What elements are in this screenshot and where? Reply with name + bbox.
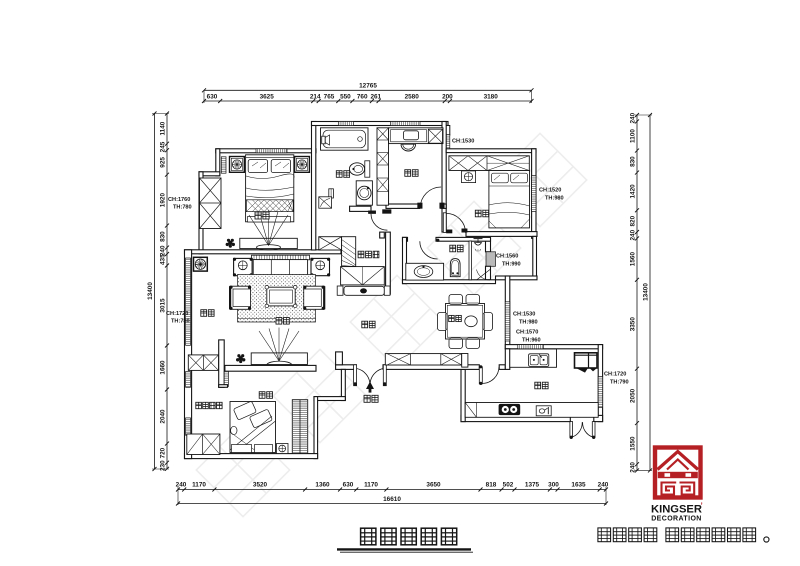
svg-text:300: 300 (548, 482, 559, 489)
svg-text:240: 240 (630, 462, 637, 473)
svg-text:CH:1530: CH:1530 (513, 312, 535, 318)
svg-text:630: 630 (343, 482, 354, 489)
svg-text:1550: 1550 (630, 436, 637, 451)
svg-text:3625: 3625 (260, 93, 275, 100)
svg-text:1660: 1660 (160, 360, 167, 375)
svg-text:TH:990: TH:990 (502, 262, 521, 268)
svg-text:TH:780: TH:780 (171, 319, 190, 325)
svg-text:3180: 3180 (484, 93, 499, 100)
svg-text:3350: 3350 (630, 317, 637, 332)
svg-text:TH:790: TH:790 (610, 380, 629, 386)
svg-text:720: 720 (160, 447, 167, 458)
svg-text:’: ’ (701, 502, 703, 511)
svg-text:1360: 1360 (315, 482, 330, 489)
svg-text:240: 240 (598, 482, 609, 489)
svg-text:TH:780: TH:780 (173, 205, 192, 211)
svg-text:818: 818 (486, 482, 497, 489)
svg-text:CH:1720: CH:1720 (166, 311, 188, 317)
svg-text:760: 760 (357, 93, 368, 100)
svg-text:CH:1530: CH:1530 (452, 139, 474, 145)
svg-text:830: 830 (630, 156, 637, 167)
svg-text:435: 435 (160, 254, 167, 265)
svg-text:CH:1760: CH:1760 (168, 197, 190, 203)
svg-text:DECORATION: DECORATION (651, 516, 702, 523)
svg-text:245: 245 (160, 141, 167, 152)
svg-text:KINGSER: KINGSER (651, 504, 702, 516)
svg-text:240: 240 (176, 482, 187, 489)
svg-text:261: 261 (370, 93, 381, 100)
svg-text:2040: 2040 (160, 409, 167, 424)
svg-text:TH:980: TH:980 (519, 320, 538, 326)
svg-text:3520: 3520 (253, 482, 268, 489)
svg-text:13400: 13400 (147, 282, 154, 300)
svg-text:925: 925 (160, 157, 167, 168)
svg-text:1635: 1635 (571, 482, 586, 489)
svg-text:820: 820 (630, 215, 637, 226)
svg-text:1140: 1140 (160, 121, 167, 135)
svg-text:12765: 12765 (359, 83, 377, 90)
svg-text:2580: 2580 (405, 93, 420, 100)
svg-text:240: 240 (630, 229, 637, 240)
svg-text:230: 230 (160, 460, 167, 471)
svg-text:2050: 2050 (630, 388, 637, 403)
svg-text:CH:1520: CH:1520 (539, 188, 561, 194)
svg-text:765: 765 (324, 93, 335, 100)
svg-text:CH:1720: CH:1720 (604, 372, 626, 378)
svg-text:200: 200 (442, 93, 453, 100)
svg-text:550: 550 (340, 93, 351, 100)
svg-text:1920: 1920 (160, 193, 167, 208)
svg-text:1560: 1560 (630, 252, 637, 267)
svg-text:1170: 1170 (192, 482, 206, 489)
svg-text:630: 630 (207, 93, 218, 100)
svg-text:502: 502 (503, 482, 514, 489)
svg-text:13400: 13400 (643, 283, 650, 301)
svg-text:1375: 1375 (525, 482, 540, 489)
svg-text:1420: 1420 (630, 184, 637, 199)
svg-text:16610: 16610 (383, 496, 401, 503)
svg-text:CH:1560: CH:1560 (496, 254, 518, 260)
svg-text:830: 830 (160, 231, 167, 242)
svg-text:240: 240 (630, 112, 637, 123)
svg-text:1170: 1170 (364, 482, 378, 489)
svg-text:1100: 1100 (630, 129, 637, 143)
svg-text:3650: 3650 (426, 482, 441, 489)
svg-text:CH:1570: CH:1570 (516, 330, 538, 336)
svg-text:TH:980: TH:980 (545, 196, 564, 202)
svg-text:TH:960: TH:960 (522, 338, 541, 344)
svg-text:214: 214 (310, 93, 321, 100)
